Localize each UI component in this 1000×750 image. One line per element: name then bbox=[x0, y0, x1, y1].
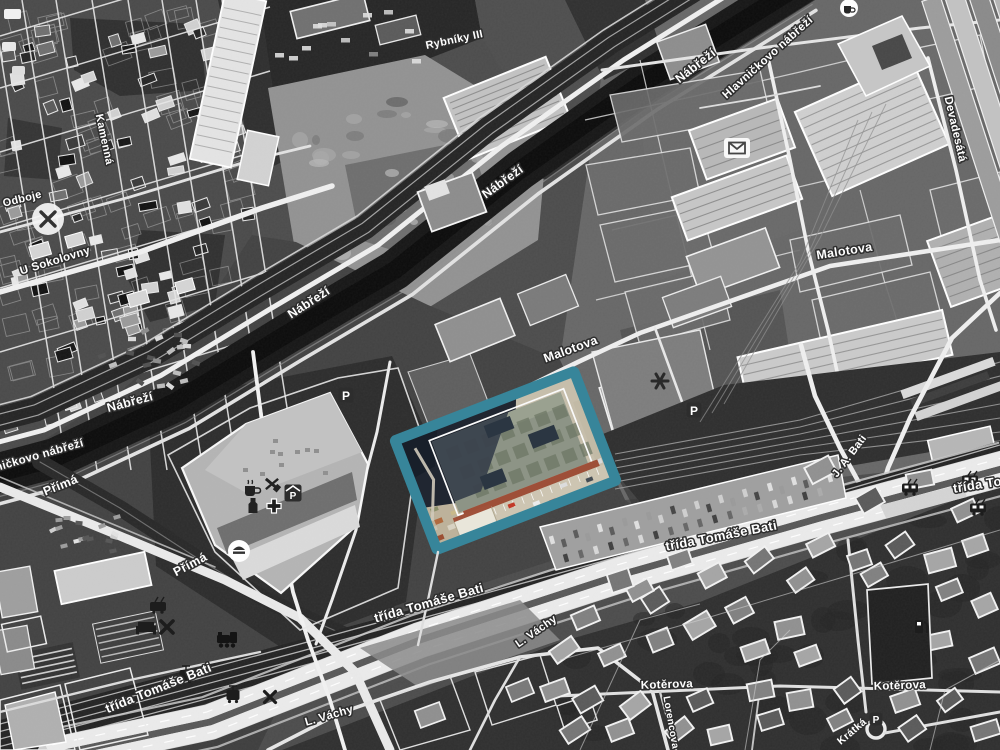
svg-text:P: P bbox=[342, 389, 350, 403]
svg-text:Kotěrova: Kotěrova bbox=[874, 679, 927, 693]
svg-text:Kotěrova: Kotěrova bbox=[641, 678, 694, 692]
svg-text:P: P bbox=[290, 491, 297, 502]
svg-text:P: P bbox=[690, 404, 698, 418]
svg-text:P: P bbox=[873, 715, 880, 726]
